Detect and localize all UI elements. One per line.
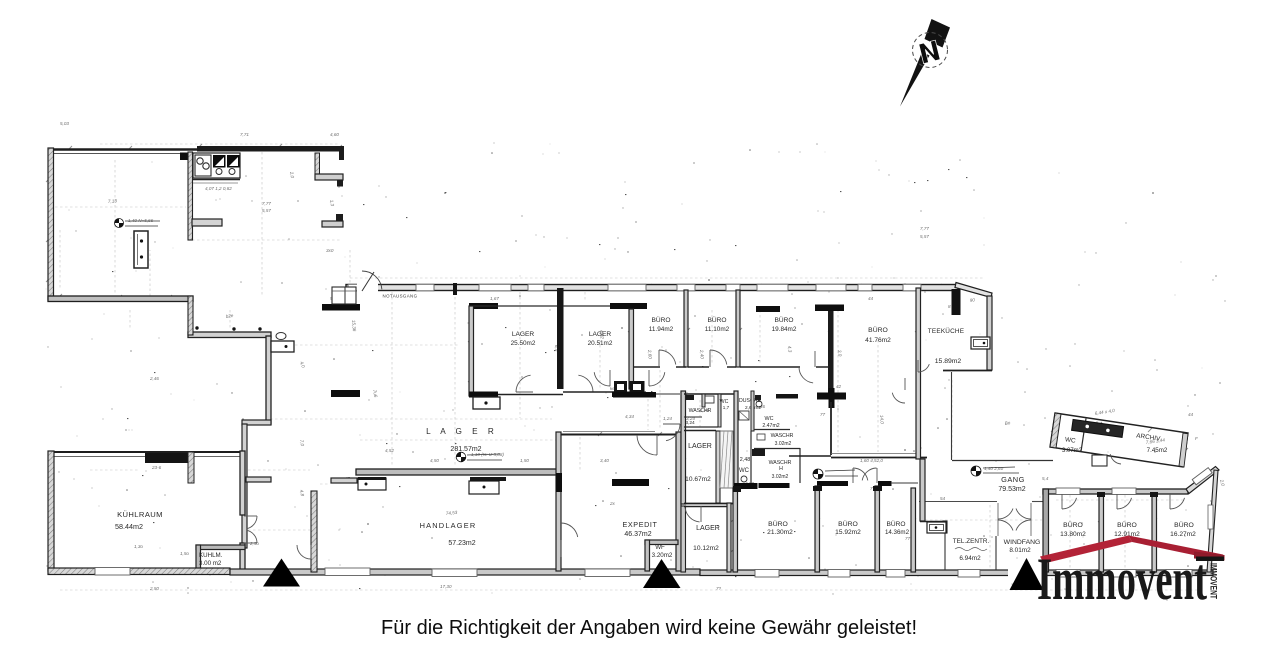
svg-text:1,5o: 1,5o — [180, 551, 189, 556]
svg-text:19.84m2: 19.84m2 — [772, 326, 797, 333]
svg-text:44: 44 — [868, 296, 874, 301]
svg-text:1,24: 1,24 — [663, 416, 672, 421]
svg-text:2,50: 2,50 — [149, 586, 159, 591]
svg-text:BÜRO: BÜRO — [1174, 521, 1194, 529]
svg-text:WC: WC — [739, 468, 750, 474]
svg-text:Für die Richtigkeit der Angabe: Für die Richtigkeit der Angaben wird kei… — [381, 617, 917, 639]
svg-text:20.51m2: 20.51m2 — [588, 340, 613, 347]
svg-text:1,40 N=5,66: 1,40 N=5,66 — [128, 218, 154, 223]
svg-text:3x0: 3x0 — [326, 248, 334, 253]
svg-text:Immovent: Immovent — [1037, 546, 1207, 612]
svg-text:7,77: 7,77 — [262, 201, 271, 206]
svg-text:10.12m2: 10.12m2 — [693, 545, 719, 552]
svg-text:6.94m2: 6.94m2 — [959, 555, 981, 562]
svg-text:1,60 4,52,0: 1,60 4,52,0 — [860, 458, 883, 463]
svg-text:2,48: 2,48 — [740, 457, 751, 463]
svg-text:54: 54 — [940, 496, 946, 501]
svg-text:H: H — [779, 466, 783, 472]
svg-text:WC: WC — [765, 416, 774, 422]
svg-text:TEEKÜCHE: TEEKÜCHE — [928, 327, 964, 335]
svg-text:15.89m2: 15.89m2 — [935, 358, 962, 365]
svg-text:1,50: 1,50 — [520, 458, 529, 463]
svg-text:11.94m2: 11.94m2 — [649, 326, 674, 333]
svg-text:LAGER: LAGER — [589, 331, 612, 338]
svg-text:77: 77 — [905, 536, 911, 541]
svg-text:7?: 7? — [716, 586, 722, 591]
svg-text:14,0: 14,0 — [879, 415, 885, 425]
svg-text:3.07m2: 3.07m2 — [1062, 448, 1083, 454]
svg-text:5,57: 5,57 — [262, 208, 271, 213]
svg-text:4,50: 4,50 — [430, 458, 439, 463]
svg-text:3.02m2: 3.02m2 — [775, 441, 792, 447]
svg-text:WF: WF — [655, 544, 665, 551]
svg-text:57.23m2: 57.23m2 — [448, 540, 475, 547]
svg-text:BÜRO: BÜRO — [1117, 521, 1137, 529]
svg-text:2,40: 2,40 — [699, 349, 705, 360]
svg-text:2x: 2x — [609, 501, 616, 506]
svg-text:LAGER: LAGER — [512, 331, 535, 338]
svg-text:HANDLAGER: HANDLAGER — [420, 521, 477, 530]
svg-text:23-6: 23-6 — [151, 465, 162, 470]
svg-text:BÜRO: BÜRO — [838, 520, 858, 528]
svg-text:10.67m2: 10.67m2 — [685, 476, 711, 483]
svg-text:BÜRO: BÜRO — [774, 316, 793, 324]
svg-text:NOTAUSGANG: NOTAUSGANG — [383, 294, 418, 299]
svg-text:KÜHLRAUM: KÜHLRAUM — [117, 510, 163, 519]
svg-text:TEL.ZENTR.: TEL.ZENTR. — [953, 538, 990, 545]
svg-text:17,30: 17,30 — [440, 584, 452, 589]
svg-text:46.37m2: 46.37m2 — [624, 531, 651, 538]
svg-text:5,03: 5,03 — [60, 121, 69, 126]
svg-text:79.53m2: 79.53m2 — [998, 486, 1025, 493]
svg-text:EXPEDIT: EXPEDIT — [623, 520, 658, 529]
svg-text:21.30m2: 21.30m2 — [767, 529, 793, 536]
svg-text:13.80m2: 13.80m2 — [1060, 531, 1086, 538]
svg-text:8: 8 — [948, 304, 951, 309]
svg-text:BÜRO: BÜRO — [707, 316, 726, 324]
svg-text:5,4: 5,4 — [1042, 476, 1049, 481]
svg-text:44: 44 — [1188, 412, 1194, 417]
svg-text:3,40: 3,40 — [600, 458, 609, 463]
svg-text:7,13: 7,13 — [108, 198, 118, 204]
svg-text:3.20m2: 3.20m2 — [652, 552, 673, 559]
svg-text:IMMOVENT: IMMOVENT — [1208, 563, 1219, 599]
svg-text:L A G E R: L A G E R — [426, 427, 498, 436]
svg-text:BÜRO: BÜRO — [768, 520, 788, 528]
svg-text:BÜRO: BÜRO — [868, 326, 888, 334]
svg-text:41.76m2: 41.76m2 — [865, 337, 891, 344]
svg-text:4,07 1,2 0,82: 4,07 1,2 0,82 — [205, 186, 232, 191]
svg-text:BÜRO: BÜRO — [1063, 521, 1083, 529]
svg-text:7,71: 7,71 — [240, 132, 249, 137]
svg-text:3.00 m2: 3.00 m2 — [199, 560, 222, 567]
svg-text:58.44m2: 58.44m2 — [115, 522, 143, 531]
svg-text:1,67: 1,67 — [490, 296, 499, 301]
svg-text:1,7: 1,7 — [723, 405, 730, 410]
svg-text:4,34: 4,34 — [625, 414, 634, 419]
svg-text:3,24: 3,24 — [685, 420, 695, 426]
svg-text:7,77: 7,77 — [920, 226, 929, 231]
svg-text:8.01m2: 8.01m2 — [1009, 547, 1031, 554]
svg-text:1,3o: 1,3o — [134, 544, 143, 549]
svg-text:15,36: 15,36 — [351, 320, 357, 332]
svg-text:LAGER: LAGER — [696, 525, 720, 532]
svg-text:2,46: 2,46 — [149, 376, 159, 381]
svg-text:LAGER: LAGER — [688, 443, 712, 450]
svg-text:WINDFANG: WINDFANG — [1004, 539, 1041, 546]
svg-text:1,40 2,60: 1,40 2,60 — [984, 466, 1004, 471]
svg-text:77: 77 — [820, 412, 826, 417]
svg-text:4,60: 4,60 — [330, 132, 339, 137]
svg-text:2,60: 2,60 — [647, 349, 653, 360]
svg-text:KUHLM.: KUHLM. — [199, 552, 223, 559]
svg-text:42: 42 — [836, 384, 842, 389]
svg-text:3,0: 3,0 — [837, 350, 843, 357]
svg-text:BÜRO: BÜRO — [886, 520, 905, 528]
svg-text:WASCHR: WASCHR — [689, 408, 712, 414]
svg-text:11.10m2: 11.10m2 — [705, 326, 730, 333]
svg-text:15.92m2: 15.92m2 — [835, 529, 861, 536]
svg-text:GANG: GANG — [1001, 475, 1025, 484]
svg-text:2,5o: 2,5o — [249, 541, 259, 546]
svg-text:25.50m2: 25.50m2 — [511, 340, 536, 347]
svg-text:3.02m2: 3.02m2 — [772, 474, 789, 480]
svg-text:281.57m2: 281.57m2 — [450, 446, 481, 453]
svg-text:BÜRO: BÜRO — [651, 316, 670, 324]
svg-text:5,57: 5,57 — [920, 234, 929, 239]
svg-text:16.27m2: 16.27m2 — [1170, 531, 1196, 538]
svg-text:4,3: 4,3 — [787, 346, 793, 353]
svg-text:7.45m2: 7.45m2 — [1147, 447, 1168, 454]
svg-text:14.36m2: 14.36m2 — [885, 529, 910, 536]
svg-text:4,52: 4,52 — [385, 448, 394, 453]
svg-text:2.47m2: 2.47m2 — [762, 423, 779, 429]
svg-text:WASCHR: WASCHR — [771, 433, 794, 439]
